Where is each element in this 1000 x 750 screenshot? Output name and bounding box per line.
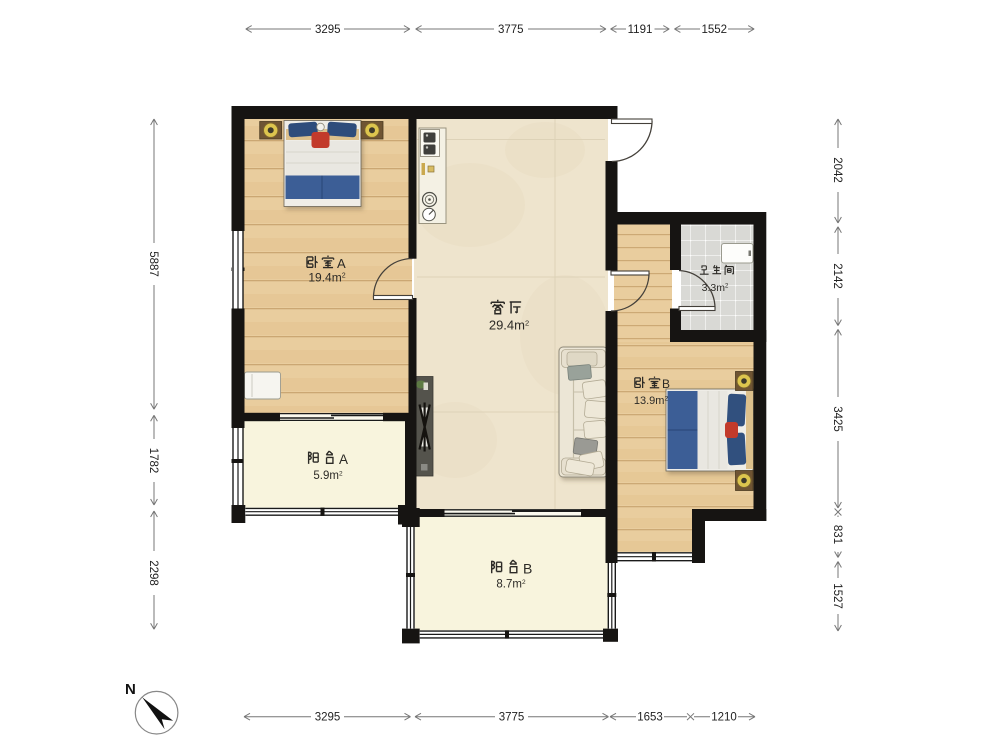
svg-text:1552: 1552 [702, 24, 728, 36]
svg-text:N: N [125, 681, 136, 698]
svg-text:1527: 1527 [831, 583, 843, 609]
svg-text:5.9m2: 5.9m2 [313, 470, 343, 482]
svg-text:3775: 3775 [498, 24, 524, 36]
svg-text:B: B [523, 561, 532, 577]
svg-text:3.3m2: 3.3m2 [702, 282, 729, 294]
svg-text:B: B [662, 377, 670, 391]
svg-text:3775: 3775 [499, 712, 525, 724]
svg-text:13.9m2: 13.9m2 [634, 395, 669, 407]
svg-text:29.4m2: 29.4m2 [489, 318, 529, 333]
svg-text:1653: 1653 [637, 712, 663, 724]
svg-text:5887: 5887 [147, 251, 159, 277]
svg-text:19.4m2: 19.4m2 [308, 271, 345, 285]
svg-text:2042: 2042 [831, 157, 843, 183]
svg-text:3295: 3295 [315, 24, 341, 36]
svg-text:8.7m2: 8.7m2 [496, 579, 526, 591]
svg-text:1191: 1191 [628, 24, 653, 36]
svg-text:A: A [337, 256, 346, 271]
svg-text:3295: 3295 [315, 712, 341, 724]
svg-text:831: 831 [831, 525, 843, 544]
svg-text:A: A [339, 452, 348, 467]
svg-text:2142: 2142 [831, 263, 843, 289]
svg-text:2298: 2298 [147, 560, 159, 586]
svg-text:3425: 3425 [831, 406, 843, 432]
svg-text:1782: 1782 [147, 448, 159, 474]
svg-text:1210: 1210 [711, 712, 737, 724]
